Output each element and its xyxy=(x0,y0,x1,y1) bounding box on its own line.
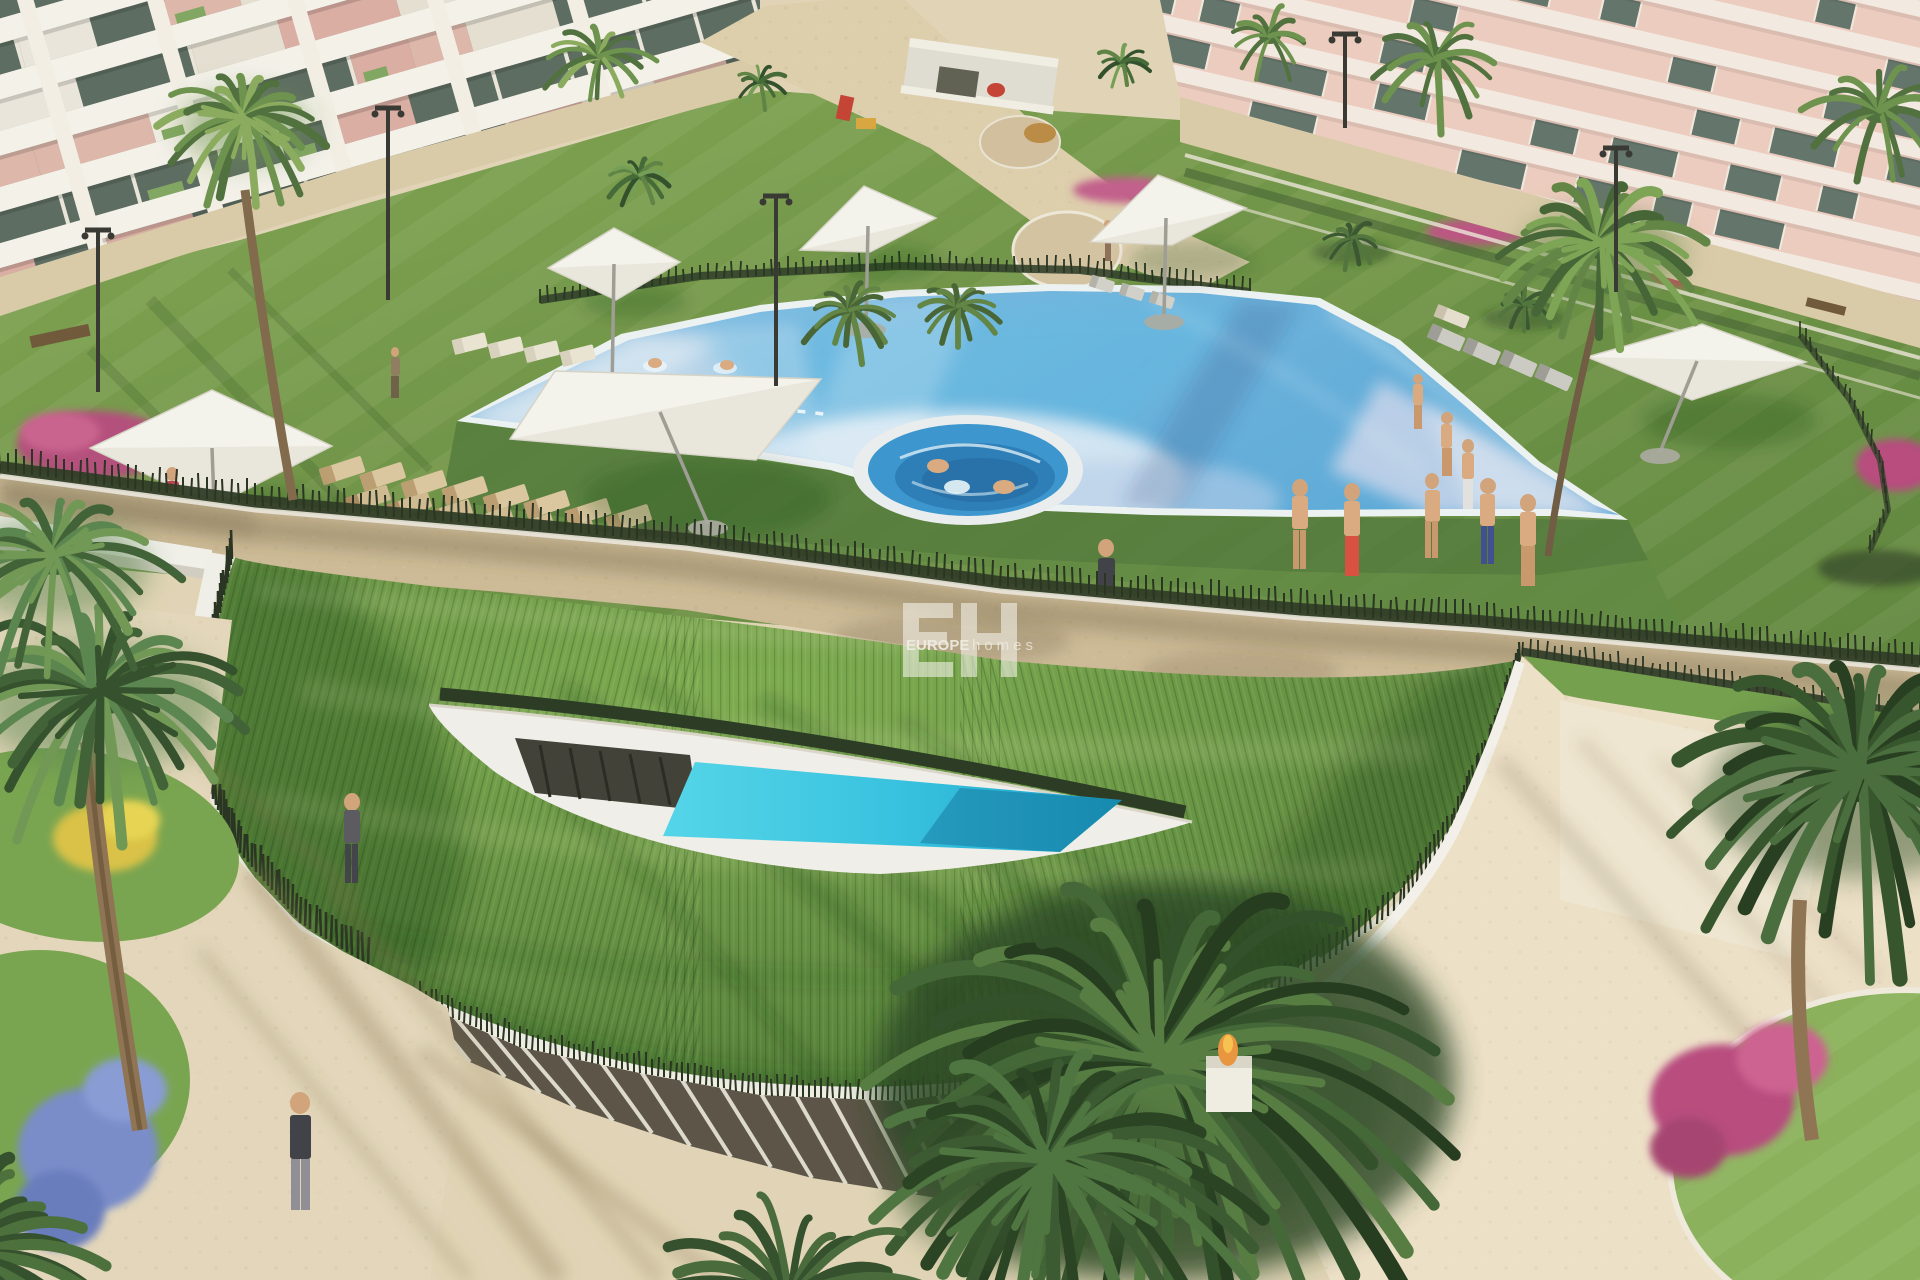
svg-text:homes: homes xyxy=(972,637,1037,654)
svg-text:EUROPE: EUROPE xyxy=(906,637,969,654)
